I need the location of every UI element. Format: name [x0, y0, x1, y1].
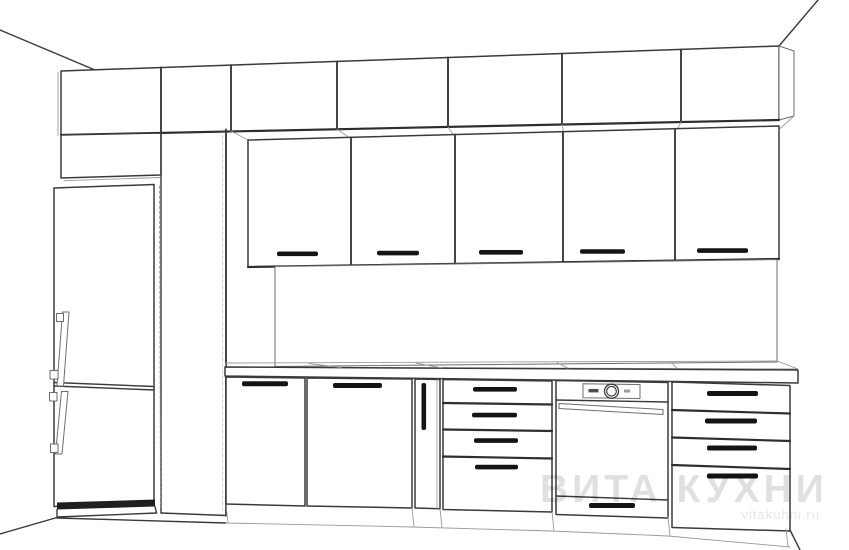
plinth-floor-line [57, 518, 226, 523]
wall-row-face [248, 126, 779, 267]
wall-door-3-handle [479, 250, 523, 255]
wall-cabinet-row [248, 126, 779, 267]
drawer-handle [705, 419, 757, 424]
fridge-base-bottom-line [57, 513, 157, 517]
plinth-step-line [412, 508, 414, 527]
tall-cabinet-column [161, 130, 226, 516]
narrow-base-door-face [415, 379, 440, 509]
refrigerator [50, 185, 161, 518]
oven-display-mark [589, 389, 599, 392]
wall-door-5-handle [697, 248, 748, 253]
base-door-1 [226, 377, 305, 506]
watermark-brand-text: ВИТА КУХНИ [540, 468, 828, 511]
drawer-unit-left-face [443, 380, 552, 513]
plinth-step-line [552, 512, 554, 531]
drawer-handle [707, 391, 758, 396]
floor-corner-left-line [0, 518, 57, 535]
kitchen-drawing-canvas: ВИТА КУХНИ vitakuhni.ru [0, 0, 849, 550]
top-cabinet-row [58, 46, 794, 140]
wall-door-4-handle [580, 249, 625, 254]
base-door-2 [307, 378, 412, 508]
fridge-handle-bracket [57, 314, 64, 322]
base-door-2-face [307, 378, 412, 508]
fridge-body [54, 185, 154, 507]
drawer-handle [474, 438, 518, 443]
narrow-base-door [415, 379, 440, 509]
base-door-1-face [226, 377, 305, 506]
kitchen-line-drawing: ВИТА КУХНИ vitakuhni.ru [0, 0, 849, 550]
tall-cabinet-bottom-edge [161, 513, 226, 516]
fridge-base-right-line [155, 507, 157, 514]
drawer-handle [475, 465, 518, 470]
fridge-handle-bracket [50, 393, 58, 402]
fridge-handle-bracket [50, 371, 58, 380]
above-fridge-cabinet-face [61, 133, 161, 178]
backsplash-panel [275, 260, 777, 367]
base-door-2-handle [333, 383, 382, 388]
above-fridge-cabinet [61, 133, 161, 181]
drawer-handle [707, 446, 757, 451]
drawer-handle [473, 387, 517, 392]
drawer-divider [443, 403, 552, 405]
base-door-1-handle [242, 381, 288, 386]
oven-display-mark [624, 390, 630, 393]
narrow-base-door-vertical-handle [422, 383, 427, 430]
drawer-handle [472, 413, 517, 418]
ceiling-corner-left-line [0, 30, 95, 70]
top-row-side-panel [779, 46, 794, 120]
floor-corner-right-line [790, 530, 800, 550]
ceiling-corner-right-line [779, 0, 818, 46]
plinth-step-line [440, 509, 442, 528]
wall-door-2-handle [377, 251, 419, 256]
fridge-handle-bracket [51, 444, 59, 453]
wall-door-1-handle [277, 252, 318, 257]
watermark-website-text: vitakuhni.ru [742, 507, 820, 522]
plinth-step-line [668, 517, 670, 536]
drawer-unit-left [443, 380, 552, 513]
drawer-divider [443, 430, 552, 432]
